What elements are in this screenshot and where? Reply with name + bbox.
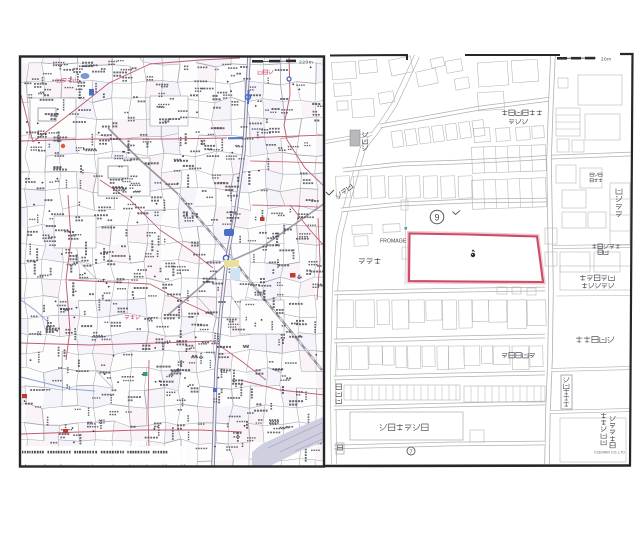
svg-text:220m: 220m xyxy=(299,60,313,66)
svg-text:9: 9 xyxy=(434,213,439,223)
svg-text:20m: 20m xyxy=(601,57,611,62)
svg-text:FROMAGE: FROMAGE xyxy=(380,239,407,245)
svg-text:©ZENRIN CO.,LTD: ©ZENRIN CO.,LTD xyxy=(594,451,625,455)
svg-text:7: 7 xyxy=(409,450,412,456)
